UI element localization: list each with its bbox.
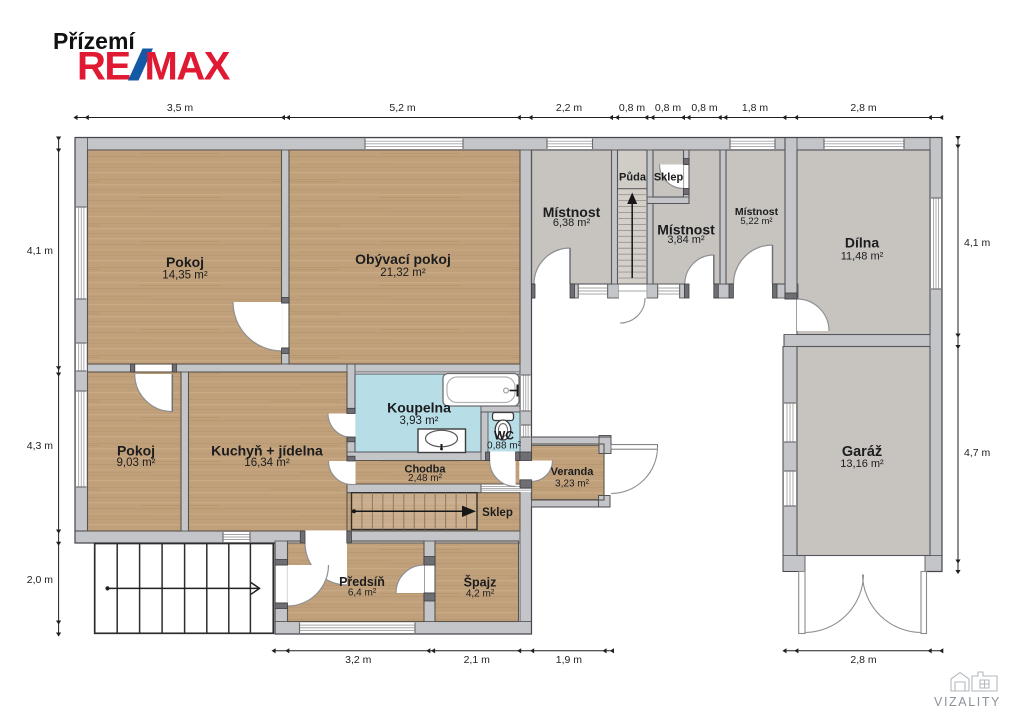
svg-text:Dílna: Dílna — [845, 235, 879, 251]
svg-text:Koupelna: Koupelna — [387, 400, 451, 416]
svg-text:2,8 m: 2,8 m — [850, 654, 877, 666]
svg-text:VIZALITY: VIZALITY — [934, 695, 1001, 709]
svg-text:1,8 m: 1,8 m — [742, 102, 769, 114]
svg-text:6,38 m²: 6,38 m² — [553, 217, 591, 229]
svg-text:21,32 m²: 21,32 m² — [380, 267, 426, 279]
svg-text:5,22 m²: 5,22 m² — [740, 216, 772, 227]
svg-text:MAX: MAX — [145, 45, 231, 89]
svg-text:9,03 m²: 9,03 m² — [117, 457, 156, 469]
svg-text:3,23 m²: 3,23 m² — [555, 479, 590, 490]
svg-text:0,88 m²: 0,88 m² — [487, 441, 522, 452]
svg-text:3,84 m²: 3,84 m² — [667, 234, 705, 246]
svg-text:14,35 m²: 14,35 m² — [162, 270, 208, 282]
svg-text:4,1 m: 4,1 m — [964, 237, 991, 249]
svg-text:3,2 m: 3,2 m — [345, 654, 372, 666]
svg-text:4,2 m²: 4,2 m² — [466, 589, 495, 600]
svg-text:4,7 m: 4,7 m — [964, 447, 991, 459]
svg-text:2,48 m²: 2,48 m² — [408, 473, 443, 484]
svg-text:2,1 m: 2,1 m — [464, 654, 491, 666]
svg-text:2,2 m: 2,2 m — [556, 102, 583, 114]
svg-text:2,0 m: 2,0 m — [27, 574, 54, 586]
svg-text:Sklep: Sklep — [482, 507, 513, 519]
svg-text:Půda: Půda — [619, 172, 647, 184]
svg-text:Pokoj: Pokoj — [166, 254, 204, 270]
svg-text:5,2 m: 5,2 m — [389, 102, 416, 114]
svg-text:Špajz: Špajz — [464, 575, 497, 590]
svg-text:16,34 m²: 16,34 m² — [244, 457, 290, 469]
svg-text:Obývací pokoj: Obývací pokoj — [355, 251, 451, 267]
svg-text:0,8 m: 0,8 m — [655, 102, 682, 114]
svg-text:1,9 m: 1,9 m — [556, 654, 583, 666]
svg-text:4,1 m: 4,1 m — [27, 245, 54, 257]
svg-text:4,3 m: 4,3 m — [27, 440, 54, 452]
svg-text:2,8 m: 2,8 m — [850, 102, 877, 114]
svg-text:RE: RE — [77, 45, 130, 89]
svg-text:13,16 m²: 13,16 m² — [840, 458, 884, 470]
svg-text:6,4 m²: 6,4 m² — [348, 588, 377, 599]
svg-text:0,8 m: 0,8 m — [691, 102, 718, 114]
svg-text:3,93 m²: 3,93 m² — [400, 415, 439, 427]
svg-text:11,48 m²: 11,48 m² — [841, 251, 884, 263]
svg-text:Veranda: Veranda — [551, 466, 595, 478]
svg-text:Sklep: Sklep — [654, 172, 684, 184]
svg-text:0,8 m: 0,8 m — [619, 102, 646, 114]
svg-text:3,5 m: 3,5 m — [167, 102, 194, 114]
